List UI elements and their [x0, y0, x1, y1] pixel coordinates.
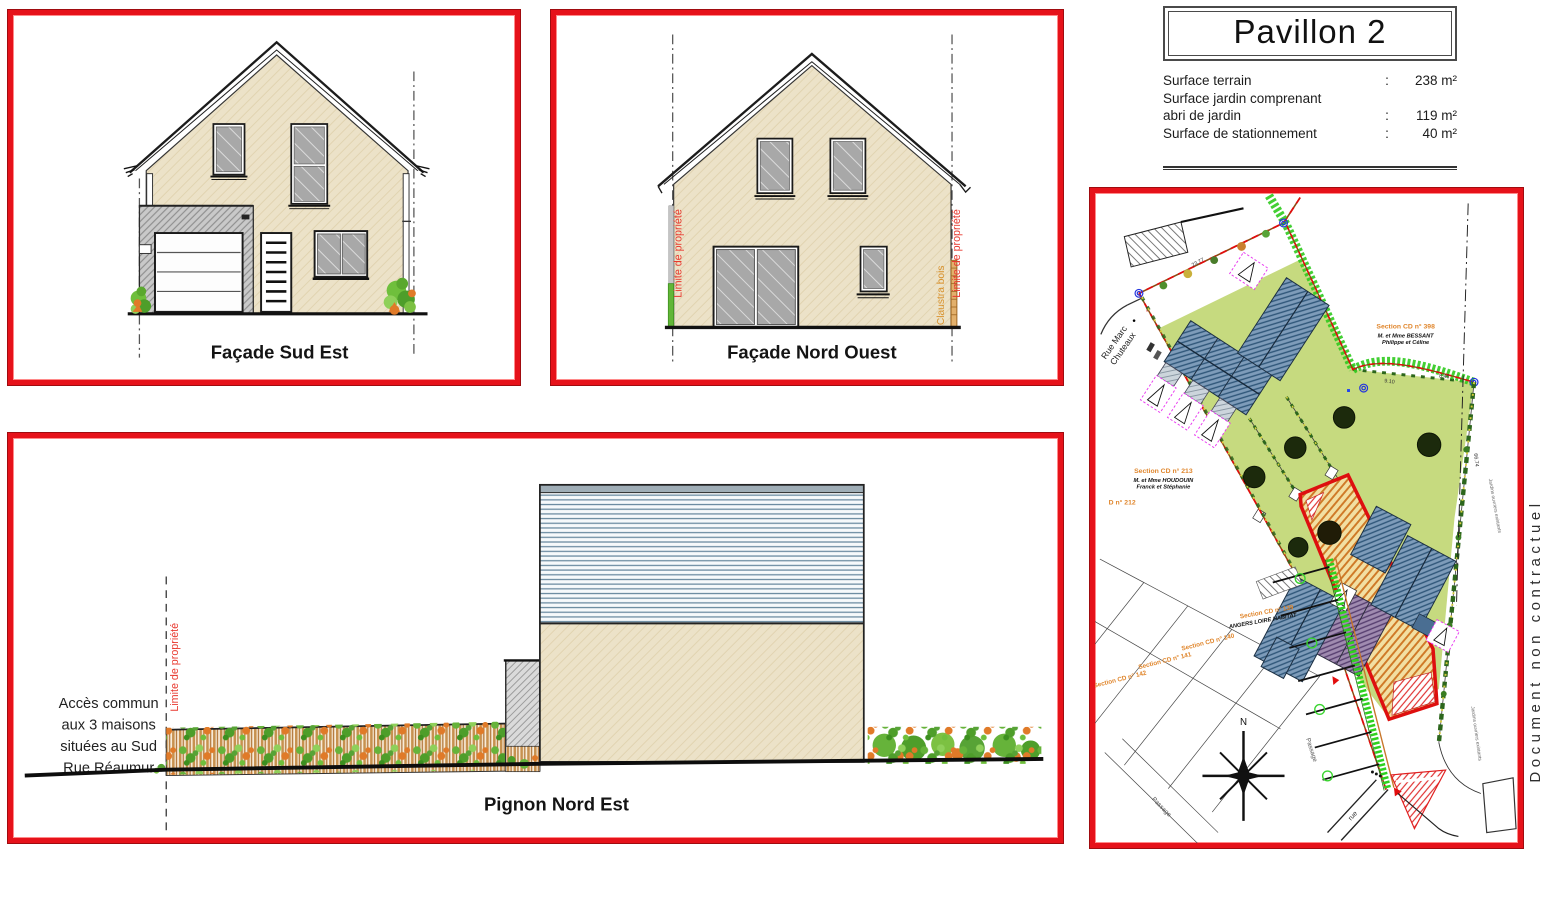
house — [124, 42, 430, 314]
panel-site-plan: N Rue Marc Chuteaux Section CD n° 398 M.… — [1090, 188, 1523, 848]
surface-label: Surface terrain — [1163, 72, 1379, 90]
render-lower — [540, 623, 864, 762]
surface-value — [1395, 90, 1457, 108]
limite-propriete-left-label: Limite de propriété — [672, 209, 684, 298]
access-note: Accès commun aux 3 maisons situées au Su… — [59, 696, 159, 776]
plan-sheet: Façade Sud Est — [0, 0, 1561, 907]
label-d212: D n° 212 — [1109, 498, 1136, 506]
passage-lane-edge1 — [1122, 739, 1218, 833]
window-upper-right — [288, 124, 330, 209]
title-block-divider — [1163, 166, 1457, 170]
panel-facade-sud-est: Façade Sud Est — [8, 10, 520, 385]
arrow-icon — [1332, 676, 1339, 685]
rainwater-box — [139, 245, 151, 254]
roof-cap — [540, 485, 864, 493]
annex — [504, 660, 542, 771]
facade-sud-est-drawing: Façade Sud Est — [13, 15, 515, 380]
panel-facade-nord-ouest: Limite de propriété Limite de propriété … — [551, 10, 1063, 385]
window-ground-right — [313, 231, 369, 279]
surface-value: 119 m² — [1395, 107, 1457, 125]
surface-sep: : — [1379, 125, 1395, 143]
north-label: N — [1240, 717, 1247, 728]
french-door — [714, 247, 799, 328]
dim-66-74: 66.74 — [1472, 453, 1479, 467]
label-rue: rue — [1347, 810, 1359, 822]
car-icon — [1146, 342, 1155, 352]
label-passage-1: Passage — [1304, 737, 1318, 763]
building — [540, 485, 864, 762]
label-cd398: Section CD n° 398 — [1376, 322, 1435, 330]
surface-sep: : — [1379, 72, 1395, 90]
surface-sep — [1379, 90, 1395, 108]
surface-value: 40 m² — [1395, 125, 1457, 143]
eave-kink-left — [658, 186, 662, 193]
car-icon — [1153, 350, 1162, 360]
house — [658, 54, 970, 328]
label-cd142: Section CD n° 142 — [1095, 669, 1148, 690]
label-passage-2: Passage — [1150, 796, 1172, 819]
window-upper-left — [210, 124, 247, 179]
label-cd213-owner2: Franck et Stéphanie — [1137, 485, 1191, 491]
window-upper-left — [754, 139, 795, 199]
surface-label: Surface de stationnement — [1163, 125, 1379, 143]
access-note-line3: situées au Sud — [60, 739, 157, 755]
title-frame: Pavillon 2 — [1163, 6, 1457, 61]
label-cd140: Section CD n° 140 — [1181, 632, 1236, 653]
label-cd213-owner1: M. et Mme HOUDOUIN — [1134, 478, 1195, 484]
watermark-document-non-contractuel: Document non contractuel — [1527, 436, 1547, 846]
surface-sep: : — [1379, 107, 1395, 125]
surface-label: abri de jardin — [1163, 107, 1379, 125]
compass-rose-icon: N — [1202, 717, 1284, 821]
caption-facade-sud-est: Façade Sud Est — [211, 342, 349, 363]
surface-row: abri de jardin : 119 m² — [1163, 107, 1457, 125]
entrance-door — [261, 233, 291, 312]
surface-table: Surface terrain : 238 m² Surface jardin … — [1163, 72, 1457, 142]
surface-label: Surface jardin comprenant — [1163, 90, 1379, 108]
surface-value: 238 m² — [1395, 72, 1457, 90]
limite-propriete-right-label: Limite de propriété — [951, 209, 963, 298]
label-jardins-2: Jardins ouvriers existants — [1469, 706, 1483, 762]
garage-lamp — [242, 215, 250, 220]
garage-door — [155, 233, 243, 312]
small-building — [1483, 778, 1516, 833]
window-upper-right — [827, 139, 868, 199]
plot-tree — [1318, 521, 1341, 544]
label-cd398-owner2: Philippe et Céline — [1382, 340, 1429, 346]
access-note-line2: aux 3 maisons — [62, 718, 156, 734]
page-title: Pavillon 2 — [1168, 11, 1452, 56]
label-cd213: Section CD n° 213 — [1134, 467, 1193, 475]
label-cd398-owner1: M. et Mme BESSANT — [1378, 333, 1434, 339]
facade-nord-ouest-drawing: Limite de propriété Limite de propriété … — [556, 15, 1058, 380]
panel-pignon-nord-est: Accès commun aux 3 maisons situées au Su… — [8, 433, 1063, 843]
caption-facade-nord-ouest: Façade Nord Ouest — [727, 342, 896, 363]
claustra-bois-label: Claustra bois — [936, 265, 947, 325]
surface-row: Surface jardin comprenant — [1163, 90, 1457, 108]
caption-pignon-nord-est: Pignon Nord Est — [484, 794, 629, 815]
pignon-nord-est-drawing: Accès commun aux 3 maisons situées au Su… — [13, 438, 1058, 838]
surface-row: Surface terrain : 238 m² — [1163, 72, 1457, 90]
label-jardins-1: Jardins ouvriers existants — [1487, 478, 1503, 534]
site-plan-drawing: N Rue Marc Chuteaux Section CD n° 398 M.… — [1095, 193, 1518, 843]
title-block: Pavillon 2 Surface terrain : 238 m² Surf… — [1163, 6, 1457, 170]
siding-upper — [540, 493, 864, 624]
limite-propriete-label: Limite de propriété — [169, 623, 181, 712]
access-note-line1: Accès commun — [59, 696, 159, 712]
existing-building — [1124, 222, 1187, 267]
dim-8-46: 8.46 — [1439, 373, 1450, 380]
surface-row: Surface de stationnement : 40 m² — [1163, 125, 1457, 143]
window-ground-small — [857, 247, 890, 298]
label-cd141: Section CD n° 141 — [1138, 650, 1193, 671]
